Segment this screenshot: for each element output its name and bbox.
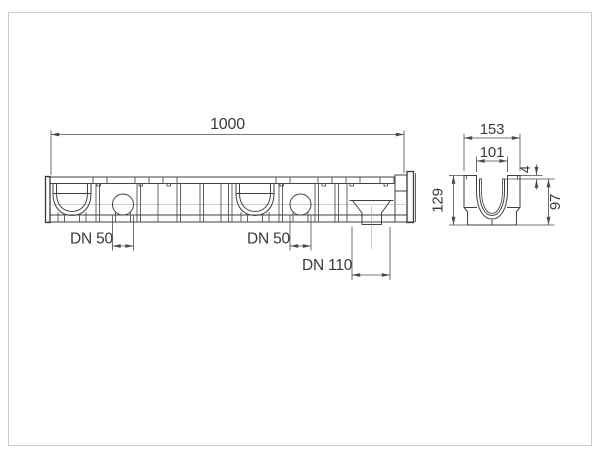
locking-slots — [93, 178, 394, 187]
dn50-outlet-right — [290, 194, 311, 222]
dn110-outlet-funnel — [350, 201, 393, 250]
dim-label-edge-gap: 4 — [518, 165, 533, 173]
dimension-length: 1000 — [51, 116, 404, 175]
drainage-channel-drawing: 1000 DN 50 DN 50 DN 110 — [0, 0, 600, 450]
right-end-cap — [407, 172, 414, 223]
drawing-border — [9, 13, 592, 446]
cross-section-view: 153 101 4 129 97 — [430, 121, 565, 225]
dim-label-inner-width: 101 — [480, 144, 504, 161]
dim-label-dn110: DN 110 — [302, 257, 353, 274]
engineering-drawing-canvas: 1000 DN 50 DN 50 DN 110 — [0, 0, 600, 450]
dim-label-length: 1000 — [210, 116, 245, 133]
dimension-dn110: DN 110 — [302, 227, 390, 280]
dimension-inner-width: 101 — [477, 144, 508, 172]
dim-label-inner-depth: 97 — [547, 194, 564, 210]
dim-label-outer-width: 153 — [480, 121, 504, 138]
outlet-bowl-right — [236, 184, 274, 222]
section-profile — [464, 176, 520, 226]
dim-label-dn50-left: DN 50 — [70, 231, 114, 248]
dim-label-dn50-right: DN 50 — [247, 231, 291, 248]
dimension-edge-gap: 4 — [505, 165, 555, 190]
side-view: 1000 DN 50 DN 50 DN 110 — [46, 116, 416, 280]
section-liner-outer — [480, 179, 505, 216]
section-liner-inner — [482, 179, 503, 214]
left-end-cap — [46, 177, 51, 223]
dimension-height: 129 — [430, 176, 468, 226]
outlet-bowl-left — [53, 184, 91, 222]
dimension-inner-depth: 97 — [517, 179, 565, 225]
dim-label-height: 129 — [430, 188, 447, 212]
dn50-outlet-left — [113, 194, 134, 222]
